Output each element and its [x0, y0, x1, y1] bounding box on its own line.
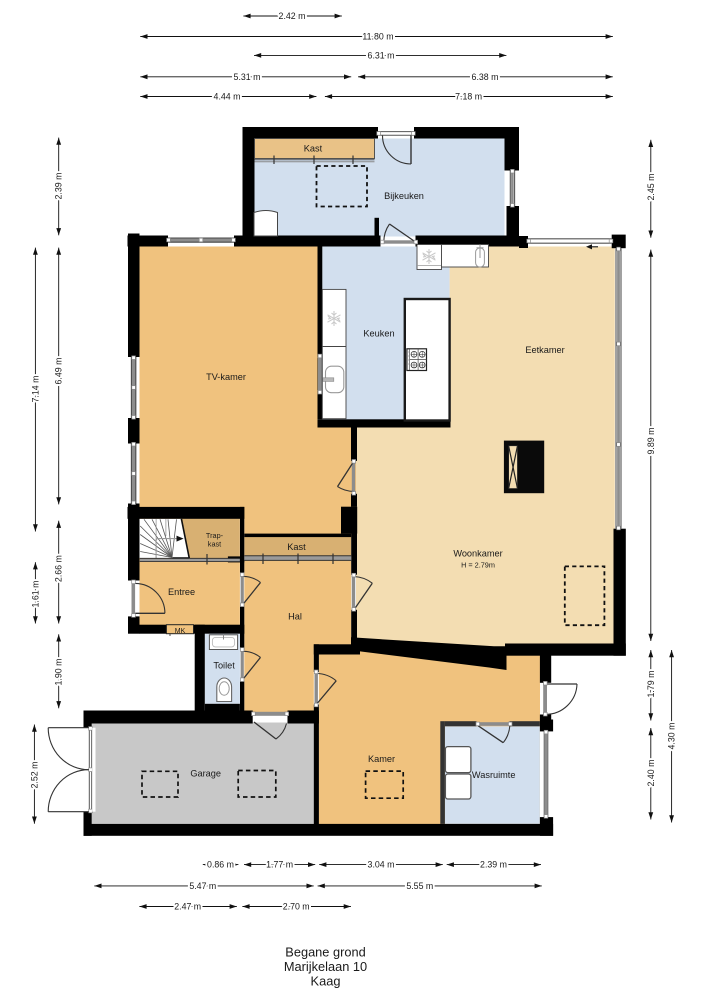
svg-text:Entree: Entree	[168, 587, 195, 597]
svg-text:TV-kamer: TV-kamer	[206, 372, 246, 382]
svg-text:Kast: Kast	[304, 144, 323, 154]
svg-text:2.70 m: 2.70 m	[283, 902, 310, 912]
svg-text:2.47 m: 2.47 m	[174, 902, 201, 912]
svg-text:Kamer: Kamer	[368, 754, 395, 764]
svg-text:Keuken: Keuken	[363, 329, 394, 339]
svg-text:1.77 m: 1.77 m	[266, 860, 293, 870]
svg-text:2.39 m: 2.39 m	[54, 173, 64, 200]
svg-text:Woonkamer: Woonkamer	[453, 549, 502, 559]
svg-text:4.30 m: 4.30 m	[667, 723, 677, 750]
svg-text:5.55 m: 5.55 m	[406, 881, 433, 891]
svg-text:7.14 m: 7.14 m	[30, 376, 40, 403]
svg-text:Eetkamer: Eetkamer	[525, 345, 564, 355]
svg-text:5.31 m: 5.31 m	[234, 72, 261, 82]
svg-text:Kast: Kast	[287, 542, 306, 552]
svg-text:7.18 m: 7.18 m	[455, 92, 482, 102]
svg-text:Hal: Hal	[288, 612, 302, 622]
svg-text:H = 2.79m: H = 2.79m	[461, 561, 495, 570]
svg-text:1.90 m: 1.90 m	[54, 659, 64, 686]
svg-text:11.80 m: 11.80 m	[362, 32, 393, 42]
svg-text:0.86 m: 0.86 m	[207, 860, 234, 870]
svg-text:1.79 m: 1.79 m	[646, 671, 656, 698]
svg-text:2.66 m: 2.66 m	[54, 555, 64, 582]
svg-text:3.04 m: 3.04 m	[368, 860, 395, 870]
svg-text:MK: MK	[175, 628, 186, 635]
svg-text:1.61 m: 1.61 m	[30, 581, 40, 608]
svg-text:Garage: Garage	[190, 769, 221, 779]
svg-text:2.52 m: 2.52 m	[29, 762, 39, 789]
svg-text:Marijkelaan 10: Marijkelaan 10	[284, 959, 367, 974]
svg-text:2.39 m: 2.39 m	[480, 860, 507, 870]
svg-text:6.31 m: 6.31 m	[368, 50, 395, 60]
svg-text:Kaag: Kaag	[311, 974, 341, 989]
svg-text:Bijkeuken: Bijkeuken	[384, 191, 424, 201]
svg-text:kast: kast	[208, 540, 221, 549]
svg-text:2.45 m: 2.45 m	[646, 174, 656, 201]
svg-text:4.44 m: 4.44 m	[214, 92, 241, 102]
svg-text:6.49 m: 6.49 m	[54, 358, 64, 385]
svg-text:Wasruimte: Wasruimte	[472, 770, 516, 780]
svg-text:Begane grond: Begane grond	[285, 945, 365, 960]
svg-text:Toilet: Toilet	[213, 661, 235, 671]
svg-text:2.42 m: 2.42 m	[279, 11, 306, 21]
svg-text:2.40 m: 2.40 m	[646, 760, 656, 787]
svg-text:6.38 m: 6.38 m	[472, 72, 499, 82]
svg-text:9.89 m: 9.89 m	[646, 428, 656, 455]
svg-text:5.47 m: 5.47 m	[189, 881, 216, 891]
